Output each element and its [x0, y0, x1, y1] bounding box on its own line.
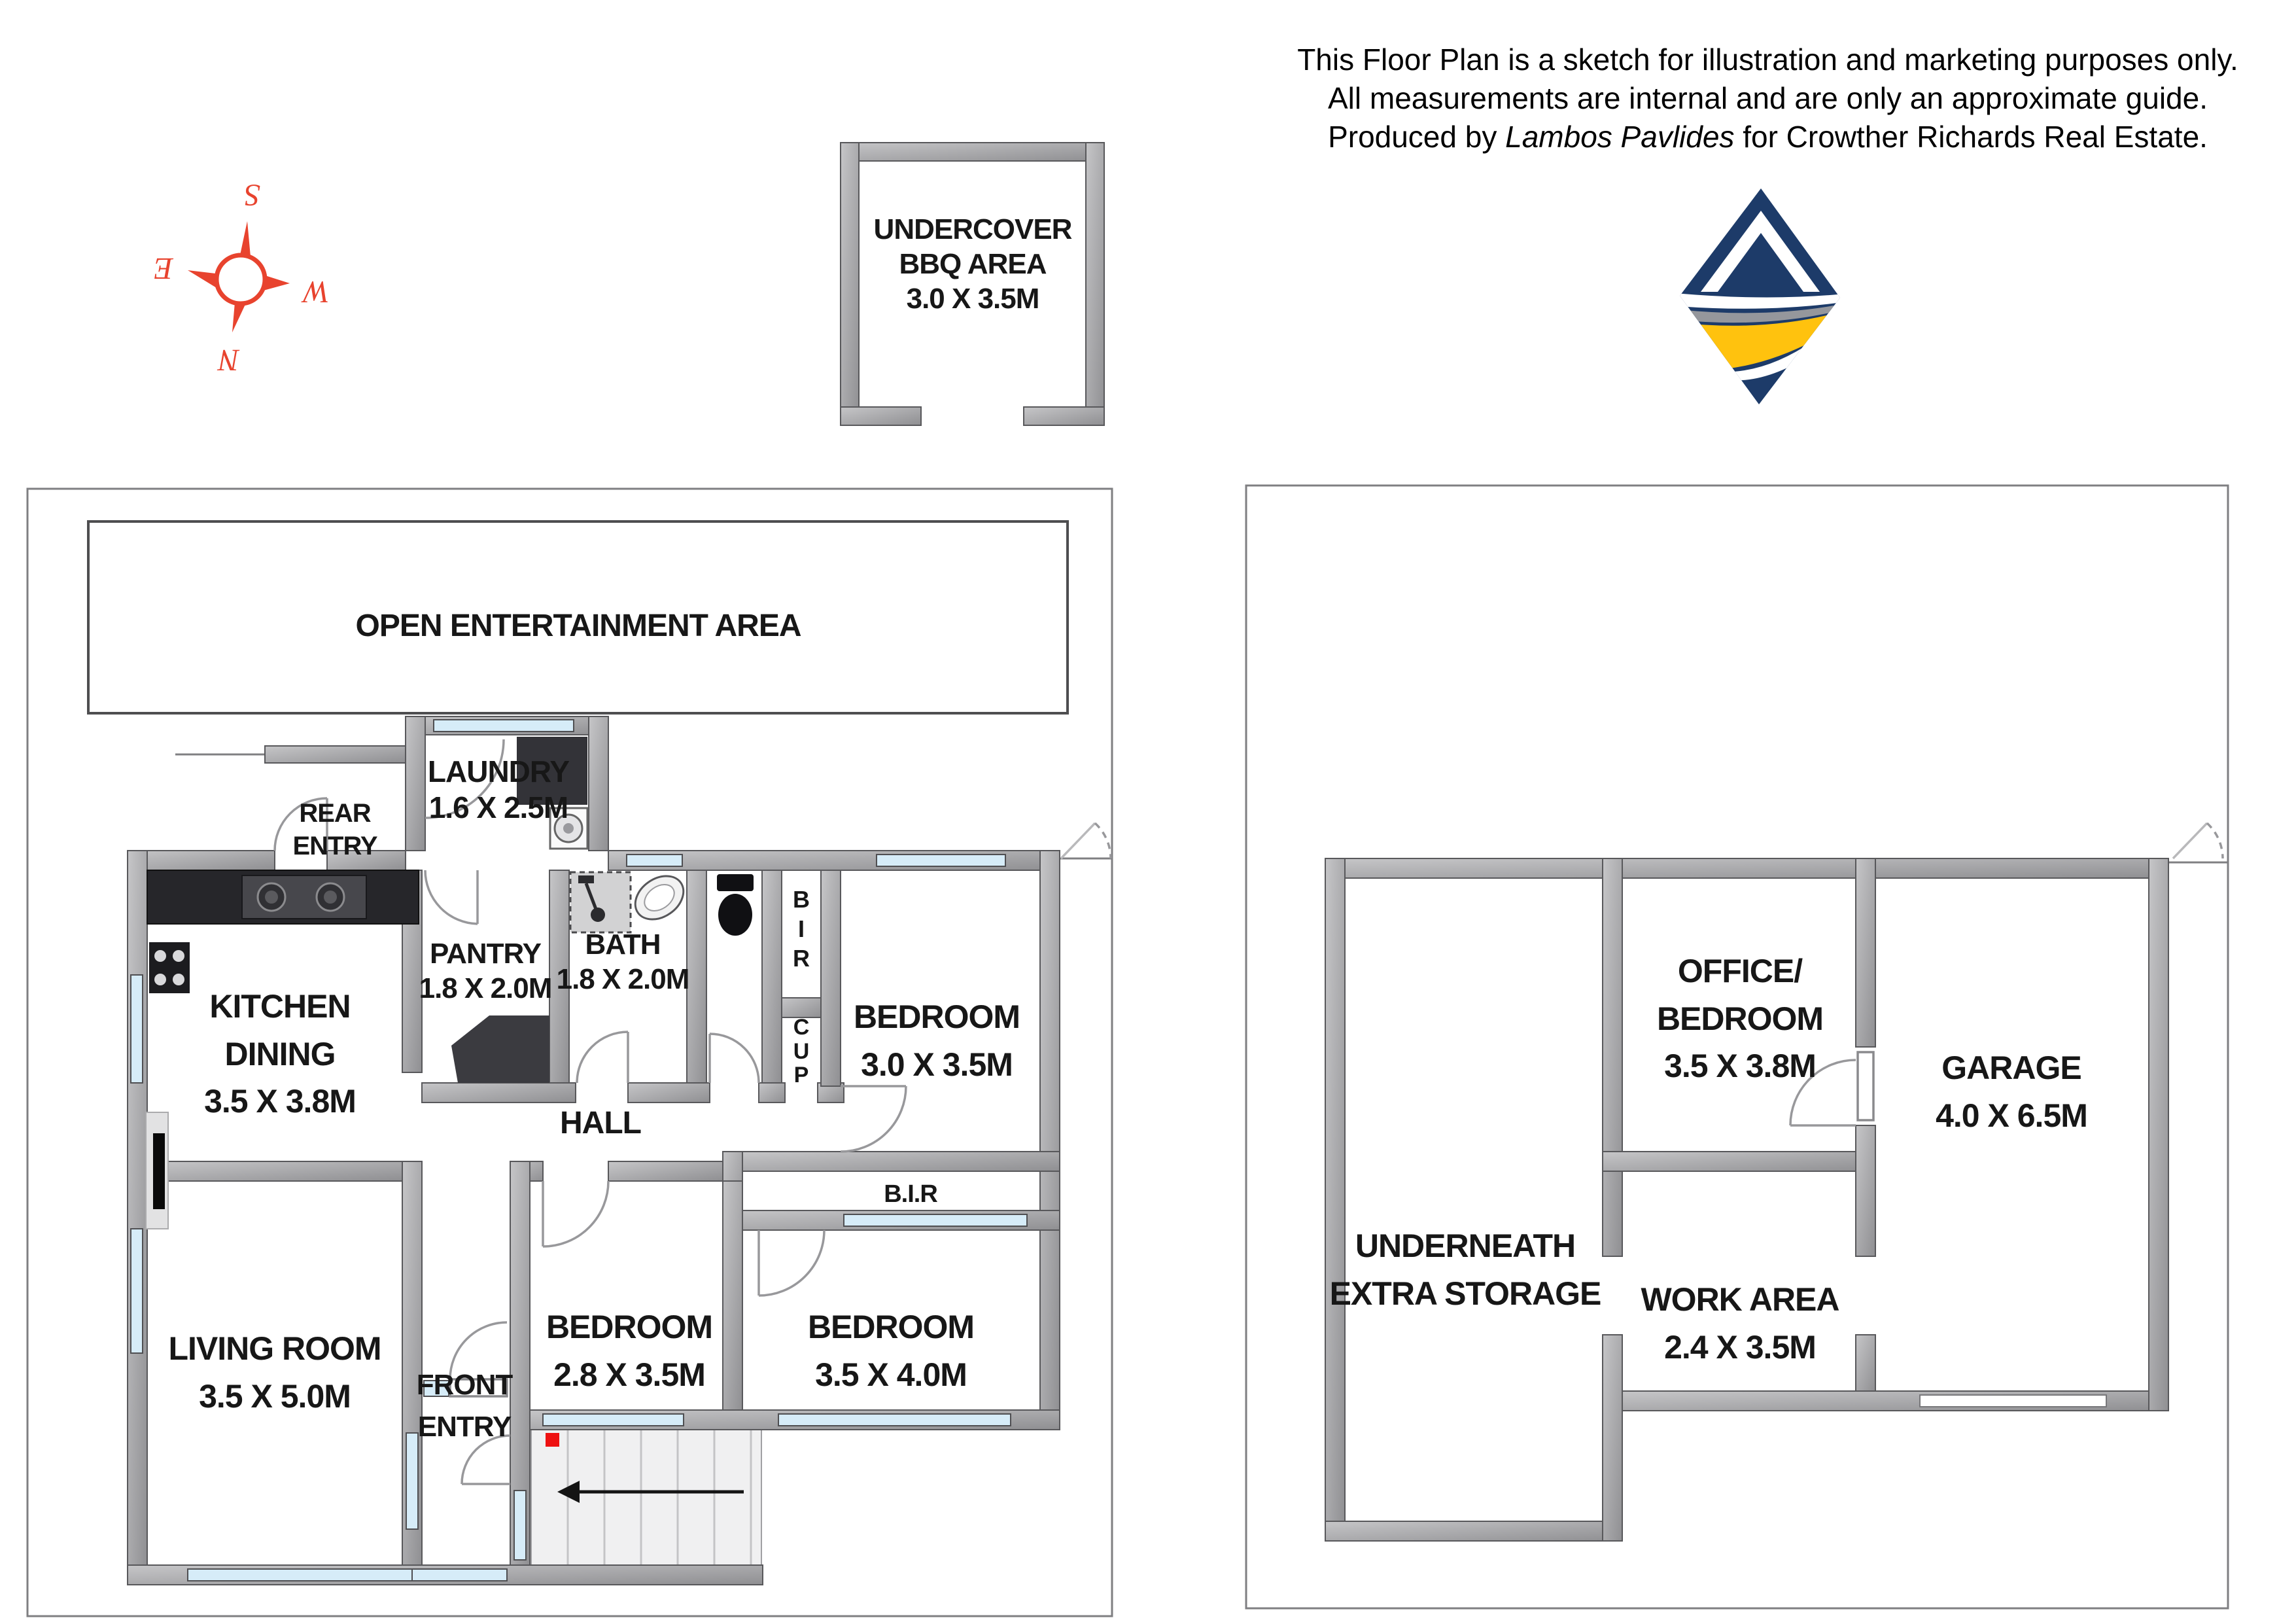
- disclaimer-text: This Floor Plan is a sketch for illustra…: [1236, 41, 2296, 156]
- open-entertainment-label: OPEN ENTERTAINMENT AREA: [355, 603, 801, 649]
- storage-label: UNDERNEATH EXTRA STORAGE: [1330, 1222, 1601, 1317]
- hall-label: HALL: [560, 1101, 641, 1146]
- disclaimer-line3: Produced by Lambos Pavlides for Crowther…: [1236, 118, 2296, 156]
- kitchen-window: [131, 975, 143, 1083]
- shower-icon: [570, 872, 631, 932]
- stairs: [531, 1430, 761, 1565]
- compass-bottom-label: N: [217, 343, 240, 378]
- front-entry-bottom-window: [412, 1569, 507, 1581]
- work-area-label: WORK AREA 2.4 X 3.5M: [1641, 1276, 1839, 1371]
- compass-right-label: W: [301, 275, 330, 309]
- bath-window: [627, 855, 682, 866]
- bedroom3-label: BEDROOM 3.5 X 4.0M: [808, 1303, 974, 1398]
- fireplace-bar: [146, 1112, 168, 1229]
- cup-closet-label: C U P: [793, 1015, 810, 1087]
- bedroom3-door-swing: [759, 1230, 824, 1296]
- stove-icon: [149, 942, 190, 993]
- disclaimer-line2: All measurements are internal and are on…: [1236, 79, 2296, 118]
- living-room-label: LIVING ROOM 3.5 X 5.0M: [168, 1325, 381, 1420]
- wc-door-swing: [710, 1034, 759, 1083]
- compass-left-label: E: [154, 251, 173, 286]
- floor-plan-page: { "disclaimer": { "line1": "This Floor P…: [0, 0, 2296, 1624]
- compass-top-label: S: [245, 178, 260, 213]
- bbq-area-label: UNDERCOVER BBQ AREA 3.0 X 3.5M: [874, 213, 1072, 316]
- disclaimer-line1: This Floor Plan is a sketch for illustra…: [1236, 41, 2296, 79]
- crowther-richards-logo: [1661, 188, 1851, 404]
- lower-gate-swing: [2173, 823, 2223, 858]
- bedroom2-label: BEDROOM 2.8 X 3.5M: [546, 1303, 712, 1398]
- compass-icon: S W N E: [154, 178, 330, 378]
- front-entry-right-window: [514, 1491, 526, 1560]
- pantry-shelf: [451, 1015, 549, 1083]
- bir-sliding-door: [844, 1214, 1027, 1226]
- ground-gate-swing: [1061, 823, 1111, 858]
- laundry-label: LAUNDRY 1.6 X 2.5M: [428, 754, 569, 826]
- red-marker: [546, 1433, 559, 1447]
- bedroom2-window: [543, 1414, 684, 1426]
- bedroom1-label: BEDROOM 3.0 X 3.5M: [854, 993, 1020, 1088]
- front-entry-label: FRONT ENTRY: [417, 1364, 513, 1448]
- bedroom1-window: [877, 855, 1005, 866]
- bir-closet-label: B I R: [793, 885, 810, 973]
- kitchen-counter: [147, 870, 419, 924]
- pantry-door-swing: [425, 870, 478, 924]
- bedroom2-door-swing: [543, 1181, 608, 1246]
- garage-label: GARAGE 4.0 X 6.5M: [1936, 1044, 2087, 1139]
- laundry-window: [434, 720, 574, 732]
- sink-icon: [627, 867, 692, 928]
- living-room-side-window: [131, 1229, 143, 1353]
- bath-label: BATH 1.8 X 2.0M: [557, 928, 689, 997]
- bedroom1-door-swing: [841, 1086, 906, 1152]
- bath-door-swing: [577, 1032, 628, 1083]
- toilet-icon: [717, 874, 754, 936]
- pantry-label: PANTRY 1.8 X 2.0M: [419, 937, 552, 1006]
- office-bedroom-label: OFFICE/ BEDROOM 3.5 X 3.8M: [1657, 947, 1823, 1090]
- kitchen-dining-label: KITCHEN DINING 3.5 X 3.8M: [204, 983, 356, 1125]
- rear-entry-label: REAR ENTRY: [292, 797, 377, 862]
- garage-door: [1920, 1395, 2106, 1407]
- bir-strip-label: B.I.R: [884, 1176, 937, 1212]
- bedroom3-window: [778, 1414, 1011, 1426]
